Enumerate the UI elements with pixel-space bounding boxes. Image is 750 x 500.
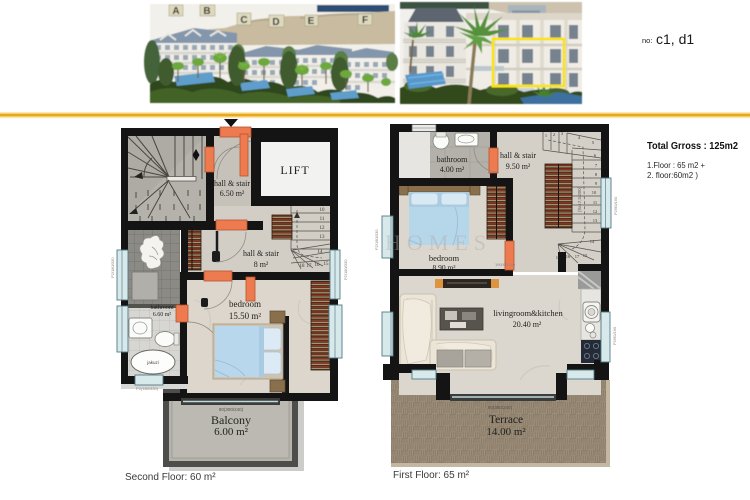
svg-text:Second Floor: 60 m²: Second Floor: 60 m² [125,472,216,483]
svg-text:11: 11 [593,200,597,205]
svg-text:P2/180/330: P2/180/330 [343,259,348,280]
svg-text:Balcony: Balcony [211,413,251,427]
svg-text:6.60 m²: 6.60 m² [153,312,172,318]
svg-text:c1, d1: c1, d1 [656,31,694,47]
svg-text:2. floor:60m2 ): 2. floor:60m2 ) [647,170,698,180]
svg-text:6.50 m²: 6.50 m² [220,189,245,198]
svg-text:13: 13 [320,235,326,240]
svg-text:1: 1 [545,133,547,138]
svg-text:A: A [172,6,179,17]
svg-text:12: 12 [320,226,326,231]
svg-text:hall & stair: hall & stair [500,151,536,160]
svg-text:P2/90/190: P2/90/190 [612,326,617,345]
svg-text:10: 10 [592,190,597,195]
svg-text:(9x17,5/300): (9x17,5/300) [577,186,582,212]
svg-text:jakuzi: jakuzi [146,360,159,365]
svg-text:HOMES: HOMES [385,230,492,255]
svg-text:hall & stair: hall & stair [214,179,250,188]
svg-text:bathroom: bathroom [437,155,468,164]
svg-text:17: 17 [575,254,580,259]
svg-text:17: 17 [307,264,313,269]
svg-text:10: 10 [320,208,326,213]
svg-text:11: 11 [320,217,325,222]
svg-text:C: C [240,15,247,26]
svg-text:90(380/240): 90(380/240) [488,405,513,410]
svg-text:20.40 m²: 20.40 m² [513,320,542,329]
svg-text:190/90/190: 190/90/190 [495,262,516,267]
svg-text:1.Floor : 65 m2 +: 1.Floor : 65 m2 + [647,160,705,170]
svg-text:8 m²: 8 m² [254,260,269,269]
svg-text:E: E [308,16,315,27]
svg-text:15: 15 [583,253,588,258]
svg-text:16: 16 [566,254,571,259]
svg-text:18: 18 [300,264,306,269]
svg-text:15: 15 [324,262,330,267]
svg-text:13: 13 [593,218,598,223]
svg-text:2: 2 [553,132,555,137]
svg-text:D: D [272,17,279,28]
svg-text:P2/180/330: P2/180/330 [374,229,379,250]
svg-text:90(300/240): 90(300/240) [219,407,244,412]
svg-text:P2/180/330: P2/180/330 [110,257,115,278]
svg-text:14: 14 [590,239,595,244]
svg-text:First Floor: 65 m²: First Floor: 65 m² [393,470,470,481]
svg-text:14.00 m²: 14.00 m² [486,426,526,438]
svg-text:bedroom: bedroom [229,299,261,309]
svg-text:livingroom&kitchen: livingroom&kitchen [493,308,563,318]
svg-text:12: 12 [593,209,598,214]
svg-text:14: 14 [318,250,324,255]
svg-text:4.00 m²: 4.00 m² [440,165,465,174]
svg-text:F: F [362,15,368,26]
svg-text:hall & stair: hall & stair [243,249,279,258]
svg-text:B: B [203,6,210,17]
svg-text:6.00 m²: 6.00 m² [214,426,249,438]
svg-text:bathroom: bathroom [151,305,174,311]
svg-text:15.50 m²: 15.50 m² [229,311,262,321]
svg-text:no:: no: [642,36,652,45]
svg-text:LIFT: LIFT [280,163,309,177]
svg-text:16: 16 [315,263,321,268]
svg-text:P2(180/330): P2(180/330) [136,386,159,391]
svg-text:Terrace: Terrace [489,414,523,426]
svg-text:P2/90/190: P2/90/190 [613,196,618,215]
svg-text:Total Grross : 125m2: Total Grross : 125m2 [647,141,738,152]
svg-text:9.50 m²: 9.50 m² [506,162,531,171]
